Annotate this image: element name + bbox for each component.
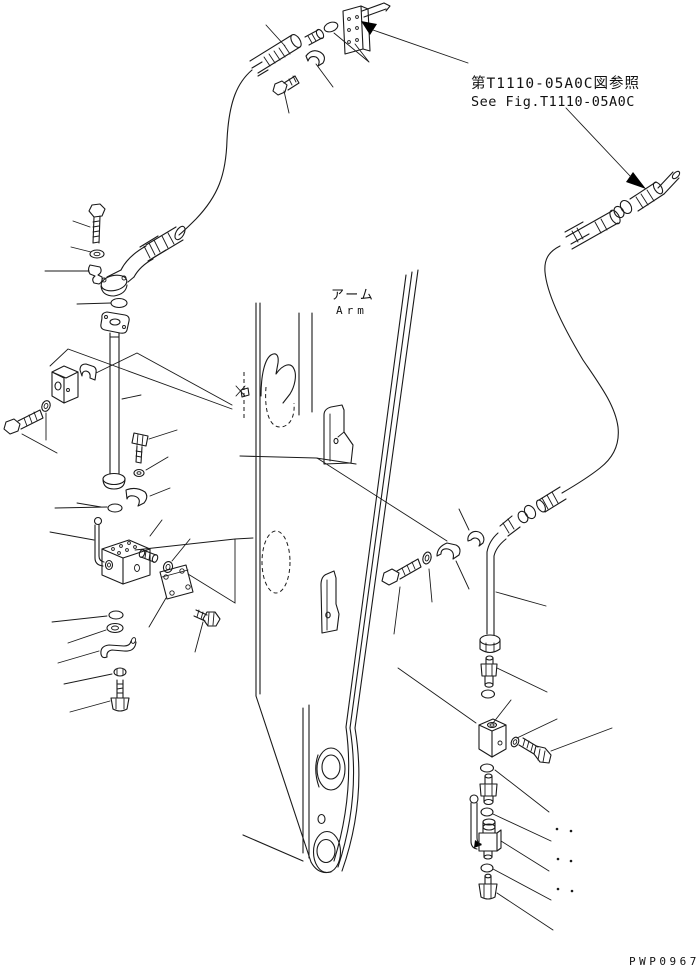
clamp-half <box>126 488 147 506</box>
middle-clamp-assembly <box>317 458 484 634</box>
manifold-block <box>102 540 150 584</box>
leader-end-dots <box>556 828 574 893</box>
arm-piping-diagram: 第T1110-05A0C図参照 See Fig.T1110-05A0C アーム … <box>0 0 700 970</box>
washer <box>510 736 521 748</box>
bolt <box>382 559 421 585</box>
bolt <box>273 76 299 95</box>
fitting-block <box>479 819 501 859</box>
leader-lines <box>266 25 369 113</box>
flange-plate <box>101 312 129 333</box>
bent-tube <box>487 533 506 635</box>
bolt-vertical <box>111 680 129 711</box>
tube-nut <box>480 635 500 653</box>
right-hose-assembly <box>480 170 681 652</box>
connector-fitting <box>481 656 497 687</box>
parts-diagram-page: 第T1110-05A0C図参照 See Fig.T1110-05A0C アーム … <box>0 0 700 970</box>
arm-structure <box>236 270 418 873</box>
leader-line <box>122 395 141 399</box>
bolt <box>4 410 43 434</box>
o-ring <box>108 504 122 512</box>
hose-curve <box>545 246 618 493</box>
mount-plate <box>160 565 193 599</box>
arm-label-jp: アーム <box>331 288 375 303</box>
o-ring <box>323 20 339 33</box>
washer <box>107 624 123 633</box>
pipe-ball-end <box>95 518 102 525</box>
bolt <box>519 738 551 763</box>
o-ring <box>481 864 493 872</box>
hose-clamp-half <box>306 51 324 66</box>
o-ring <box>481 808 493 816</box>
grease-pipe <box>470 795 482 849</box>
junction-block <box>479 719 506 757</box>
clamp-block <box>52 364 96 403</box>
clamp-half <box>437 543 460 559</box>
bent-pipe <box>95 525 104 566</box>
leader-line <box>496 592 546 606</box>
o-ring <box>482 690 495 698</box>
left-elbow-hose-assembly <box>45 204 187 333</box>
washer <box>40 399 51 412</box>
bolt <box>89 204 105 243</box>
manifold-block-assembly <box>50 518 253 713</box>
bottom-fitting-stack <box>398 656 612 930</box>
connector-fitting <box>480 774 497 805</box>
bolt-vertical <box>132 433 148 463</box>
bolt <box>194 610 220 626</box>
hose-curve <box>179 70 252 235</box>
washer <box>162 561 174 574</box>
o-ring <box>481 764 494 772</box>
leader-lines <box>317 458 469 634</box>
arm-label-en: Arm <box>336 304 368 317</box>
drawing-number: PWP0967 <box>629 955 700 968</box>
projection-lines <box>135 538 253 603</box>
top-hose-fitting-assembly <box>179 20 369 235</box>
saddle-clamp <box>468 531 484 546</box>
reference-arrow-right <box>566 108 646 189</box>
washer <box>422 551 433 565</box>
reference-arrow-top <box>361 21 468 63</box>
o-ring <box>109 611 123 619</box>
elbow-fitting <box>500 516 520 536</box>
reference-note-jp: 第T1110-05A0C図参照 <box>471 74 640 92</box>
clamp <box>89 265 103 284</box>
elbow-pipe <box>101 637 137 658</box>
fitting <box>138 549 158 563</box>
tube-flange <box>103 474 125 485</box>
nut <box>134 470 144 477</box>
plug-bolt <box>479 874 497 899</box>
nut <box>114 668 126 676</box>
leader-lines <box>398 668 612 930</box>
o-ring <box>111 299 127 308</box>
vertical-tube-assembly <box>4 333 232 512</box>
washer <box>90 250 104 258</box>
leader-lines <box>45 221 111 304</box>
reference-note-en: See Fig.T1110-05A0C <box>471 94 635 110</box>
